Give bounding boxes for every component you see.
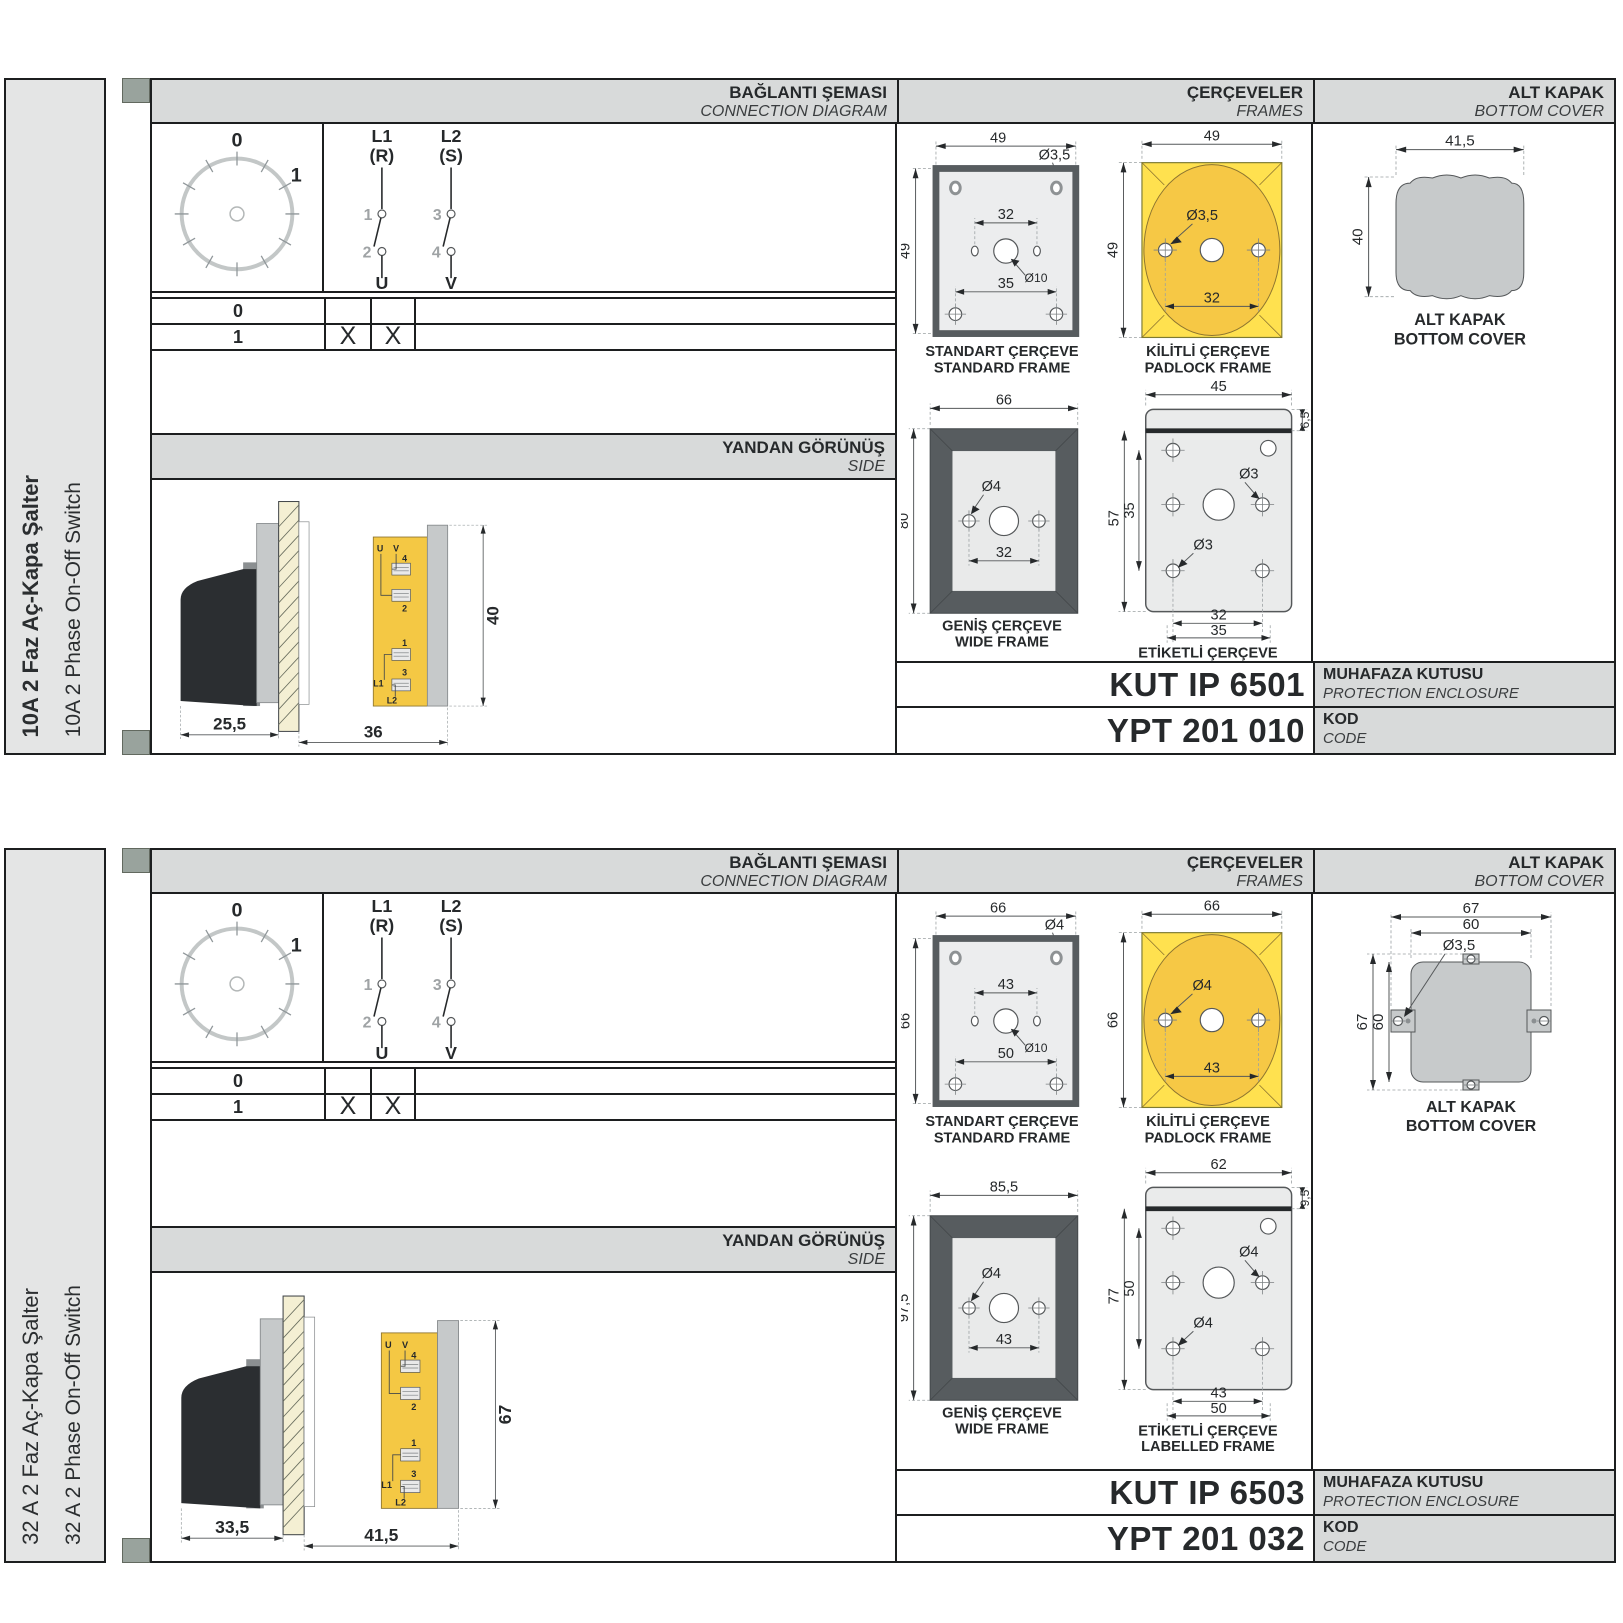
selector-dial-cell: 0 1 [152,894,324,1061]
enclosure-label-en: PROTECTION ENCLOSURE [1323,684,1614,703]
terminal-2: 2 [402,603,407,613]
lug-dot [1532,1019,1537,1024]
padlock-frame-figure: 49 49 Ø3,5 [1107,126,1309,378]
caption-tr: ALT KAPAK [1414,311,1506,329]
terminal-l1: L1 [381,1480,392,1490]
dim-inner-height: 50 [1122,1280,1138,1296]
contact-2: 2 [363,1014,372,1031]
enclosure-label: MUHAFAZA KUTUSU PROTECTION ENCLOSURE [1313,1471,1614,1514]
dim-depth-rear: 36 [364,722,383,741]
switch-diagram-cell: L1 (R) 1 2 U L2 (S) [326,124,588,291]
product-sidebar: 32 A 2 Faz Aç-Kapa Şalter 32 A 2 Phase O… [4,848,106,1563]
switch-diagram-cell: L1 (R) 1 2 U L2 (S) [326,894,588,1061]
mark-cell-u [324,299,370,323]
side-header-en: SIDE [152,1250,885,1269]
product-title-tr: 32 A 2 Faz Aç-Kapa Şalter [18,1288,44,1545]
selector-dial-cell: 0 1 [152,124,324,291]
dim-height: 57 [1107,510,1123,526]
dim-corner-hole: Ø3,5 [1039,148,1071,164]
terminal-3: 3 [411,1469,416,1479]
dim-height: 49 [1107,242,1122,258]
header-tr: ÇERÇEVELER [899,83,1303,102]
dim-height: 80 [901,513,912,529]
enclosure-code: KUT IP 6503 [897,1471,1313,1514]
table-row: 1 X X [152,325,895,351]
header-connection-diagram: BAĞLANTI ŞEMASI CONNECTION DIAGRAM [152,850,897,892]
mark-cell-v [370,299,416,323]
dim-spacing-2: 35 [1211,623,1227,639]
spacer [304,1317,315,1507]
terminal-label-u: U [385,1340,392,1350]
mark-cell-u: X [324,1095,370,1119]
caption-en: STANDARD FRAME [934,360,1071,376]
switch-handle [181,569,257,706]
terminal-4: 4 [411,1350,417,1360]
header-en: BOTTOM COVER [1315,102,1604,121]
gutter-square-top [122,78,150,103]
dial-position-0: 0 [232,130,243,152]
table-row: 1 X X [152,1095,895,1121]
caption-en: BOTTOM COVER [1394,330,1526,348]
rear-plate [438,1321,459,1509]
terminal-l2: L2 [387,696,397,706]
dim-height: 66 [901,1013,914,1029]
dim-band: 6,5 [1298,411,1312,428]
dim-width: 49 [1204,128,1220,144]
dim-hole-spacing: 32 [996,545,1012,561]
selector-dial: 0 1 [152,894,322,1061]
bottom-cover-figure: 41,5 40 ALT KAPAK BOTTOM COVER [1325,130,1609,364]
panel-body: 0 1 L1 (R) 1 [152,124,1614,753]
dim-hole-spacing: 35 [998,276,1014,292]
caption-tr: KİLİTLİ ÇERÇEVE [1146,343,1270,360]
terminal-label-v: V [393,543,399,553]
terminal-label-v: V [402,1340,409,1350]
labelled-frame-figure: 62 9,5 [1101,1156,1313,1456]
dial-position-1: 1 [291,934,302,956]
dim-slot-spacing: 43 [998,977,1014,993]
dim-hole-left: Ø3 [1193,537,1212,553]
dim-hole: Ø4 [982,479,1001,495]
dim-height-outer: 67 [1354,1014,1371,1031]
center-hole [994,1009,1018,1033]
dim-height: 97,5 [901,1294,912,1322]
center-hole [1200,1008,1223,1031]
code-label-tr: KOD [1323,710,1614,729]
dial-center [230,977,244,991]
center-hole [1200,238,1223,261]
dim-depth-rear: 41,5 [364,1525,398,1545]
dim-height: 40 [1350,228,1367,245]
front-plate [257,523,279,702]
labelled-frame-figure: 45 6,5 [1101,378,1313,678]
center-hole [1203,489,1234,520]
enclosure-label-en: PROTECTION ENCLOSURE [1323,1492,1614,1511]
spacer [299,522,309,705]
terminal-l1: L1 [373,679,383,689]
terminal-1: 1 [411,1438,416,1448]
header-en: BOTTOM COVER [1315,872,1604,891]
position-0-label: 0 [152,1069,324,1093]
code-row: YPT 201 010 KOD CODE [897,708,1614,753]
line-label-l2: L2 [441,896,462,916]
frames-column: 66 Ø4 66 [897,894,1313,1561]
enclosure-row: KUT IP 6501 MUHAFAZA KUTUSU PROTECTION E… [897,663,1614,708]
phase-label-r: (R) [370,916,395,936]
standard-frame-figure: 66 Ø4 66 [901,896,1103,1148]
padlock-frame-figure: 66 66 Ø4 [1107,896,1309,1148]
side-header-en: SIDE [152,457,885,476]
dim-hole: Ø4 [1192,978,1211,994]
line-label-l1: L1 [372,126,393,146]
terminal-label-u: U [377,543,383,553]
code-label: KOD CODE [1313,708,1614,753]
connection-diagram: 0 1 L1 (R) 1 [152,124,895,293]
position-1-label: 1 [152,325,324,349]
mark-cell-v: X [370,325,416,349]
dim-width: 66 [1204,898,1220,914]
side-header-tr: YANDAN GÖRÜNÜŞ [152,438,885,457]
dim-width: 49 [990,130,1006,146]
header-bottom-cover: ALT KAPAK BOTTOM COVER [1313,850,1614,892]
side-header-tr: YANDAN GÖRÜNÜŞ [152,1231,885,1250]
dim-lug-hole: Ø3,5 [1443,937,1476,954]
mounting-panel [283,1296,304,1535]
caption-tr: ALT KAPAK [1426,1099,1517,1116]
dim-hole-spacing: 32 [1204,291,1220,307]
mark-cell-v [370,1069,416,1093]
dim-corner-hole: Ø4 [1045,918,1064,934]
caption-tr: GENİŞ ÇERÇEVE [942,1405,1062,1422]
caption-tr: STANDART ÇERÇEVE [925,344,1079,360]
dim-hole-right: Ø4 [1239,1244,1258,1260]
mark-cell-u [324,1069,370,1093]
contact-4: 4 [432,244,441,261]
center-hole [989,506,1018,535]
mark-cell-v: X [370,1095,416,1119]
dim-height: 40 [483,606,502,625]
header-tr: BAĞLANTI ŞEMASI [152,83,887,102]
dim-hole-right: Ø3 [1239,466,1258,482]
contact-4: 4 [432,1014,441,1031]
header-frames: ÇERÇEVELER FRAMES [897,850,1313,892]
bottom-cover-figure: 67 60 67 60 [1325,900,1609,1144]
position-table: 0 1 X X [152,1067,895,1121]
cover-column: 41,5 40 ALT KAPAK BOTTOM COVER [1313,124,1614,753]
dial-position-0: 0 [232,900,243,922]
plain-hole [1260,1218,1276,1234]
standard-frame-figure: 49 Ø3,5 49 [901,126,1103,378]
product-title-en: 10A 2 Phase On-Off Switch [62,482,86,737]
empty-cell [416,299,895,323]
dim-width: 66 [996,392,1012,408]
contact-1: 1 [364,977,373,994]
dim-hole-spacing: 43 [1204,1061,1220,1077]
dim-depth-front: 25,5 [213,715,246,734]
connection-diagram: 0 1 L1 (R) 1 [152,894,895,1063]
side-view-drawing: U V 4 2 1 3 L1 L2 40 [162,488,622,750]
dim-spacing-1: 32 [1211,607,1227,623]
phase-label-s: (S) [439,916,463,936]
panel-main: BAĞLANTI ŞEMASI CONNECTION DIAGRAM ÇERÇE… [150,848,1616,1563]
table-row: 0 [152,1067,895,1095]
product-panel-32a: 32 A 2 Faz Aç-Kapa Şalter 32 A 2 Phase O… [4,848,1616,1563]
dim-hole-left: Ø4 [1193,1315,1212,1331]
dim-depth-front: 33,5 [215,1517,249,1537]
header-connection-diagram: BAĞLANTI ŞEMASI CONNECTION DIAGRAM [152,80,897,122]
dim-band: 9,5 [1298,1189,1312,1206]
code-row: YPT 201 032 KOD CODE [897,1516,1614,1561]
caption-en: WIDE FRAME [955,1421,1049,1437]
switch-handle [181,1366,260,1508]
dim-center-hole: Ø10 [1025,1041,1048,1055]
line-label-l1: L1 [372,896,393,916]
empty-cell [416,325,895,349]
codes-block: KUT IP 6503 MUHAFAZA KUTUSU PROTECTION E… [897,1469,1614,1561]
header-tr: BAĞLANTI ŞEMASI [152,853,887,872]
terminal-3: 3 [402,668,407,678]
enclosure-label-tr: MUHAFAZA KUTUSU [1323,665,1614,684]
dial-center [230,207,244,221]
product-title-tr: 10A 2 Faz Aç-Kapa Şalter [18,475,44,737]
caption-en: LABELLED FRAME [1141,1439,1275,1455]
connection-column: 0 1 L1 (R) 1 [152,894,897,1561]
contact-2: 2 [363,244,372,261]
product-sidebar: 10A 2 Faz Aç-Kapa Şalter 10A 2 Phase On-… [4,78,106,755]
dim-width: 45 [1211,379,1227,395]
dim-width-inner: 60 [1463,916,1480,933]
dim-height: 66 [1107,1012,1122,1028]
phase-label-r: (R) [370,146,395,166]
code-label-tr: KOD [1323,1518,1614,1537]
dim-spacing-2: 50 [1211,1401,1227,1417]
mark-cell-u: X [324,325,370,349]
panel-body: 0 1 L1 (R) 1 [152,894,1614,1561]
center-hole [989,1293,1018,1322]
header-bottom-cover: ALT KAPAK BOTTOM COVER [1313,80,1614,122]
mounting-panel [279,502,299,732]
enclosure-code: KUT IP 6501 [897,663,1313,706]
gutter-square-bottom [122,730,150,755]
terminal-2: 2 [411,1402,416,1412]
terminal-l2: L2 [395,1498,406,1508]
empty-cell [416,1069,895,1093]
phase-label-s: (S) [439,146,463,166]
frames-column: 49 Ø3,5 49 [897,124,1313,753]
connection-column: 0 1 L1 (R) 1 [152,124,897,753]
header-en: FRAMES [899,872,1303,891]
rear-plate [427,525,447,706]
caption-tr: GENİŞ ÇERÇEVE [942,618,1062,635]
caption-en: STANDARD FRAME [934,1130,1071,1146]
header-frames: ÇERÇEVELER FRAMES [897,80,1313,122]
terminal-1: 1 [402,638,407,648]
enclosure-label: MUHAFAZA KUTUSU PROTECTION ENCLOSURE [1313,663,1614,706]
terminal-v: V [445,273,457,291]
header-tr: ALT KAPAK [1315,853,1604,872]
plain-hole [1260,440,1276,456]
dim-height: 67 [495,1405,515,1425]
position-table: 0 1 X X [152,297,895,351]
header-tr: ÇERÇEVELER [899,853,1303,872]
selector-dial: 0 1 [152,124,322,291]
caption-tr: STANDART ÇERÇEVE [925,1114,1079,1130]
dim-height: 77 [1107,1288,1123,1304]
wide-frame-figure: 66 80 Ø4 [901,390,1103,652]
caption-tr: KİLİTLİ ÇERÇEVE [1146,1113,1270,1130]
contact-3: 3 [433,977,442,994]
dim-spacing-1: 43 [1211,1385,1227,1401]
contact-1: 1 [364,207,373,224]
caption-tr: ETİKETLİ ÇERÇEVE [1138,1422,1278,1439]
dim-width: 66 [990,900,1006,916]
gutter-square-bottom [122,1538,150,1563]
switch-diagram: L1 (R) 1 2 U L2 (S) [326,124,588,291]
center-hole [994,239,1018,263]
header-tr: ALT KAPAK [1315,83,1604,102]
product-code: YPT 201 032 [897,1516,1313,1561]
enclosure-label-tr: MUHAFAZA KUTUSU [1323,1473,1614,1492]
terminal-u: U [375,273,388,291]
terminal-u: U [375,1043,388,1061]
dim-width-outer: 67 [1463,900,1480,917]
dim-width: 62 [1211,1157,1227,1173]
codes-block: KUT IP 6501 MUHAFAZA KUTUSU PROTECTION E… [897,661,1614,753]
side-view-header: YANDAN GÖRÜNÜŞ SIDE [152,433,895,480]
caption-tr: ETİKETLİ ÇERÇEVE [1138,644,1278,661]
terminal-v: V [445,1043,457,1061]
caption-en: BOTTOM COVER [1406,1118,1537,1135]
section-header-row: BAĞLANTI ŞEMASI CONNECTION DIAGRAM ÇERÇE… [152,850,1614,894]
dim-height-inner: 60 [1370,1014,1387,1031]
product-code: YPT 201 010 [897,708,1313,753]
dim-hole-spacing: 43 [996,1332,1012,1348]
header-en: FRAMES [899,102,1303,121]
dial-position-1: 1 [291,164,302,186]
cover-body [1396,175,1524,299]
dim-center-hole: Ø10 [1025,271,1048,285]
cover-body [1411,962,1531,1082]
side-view-figure: U V 4 2 1 3 L1 L2 40 [162,488,622,750]
dim-inner-height: 35 [1122,502,1138,518]
product-title-en: 32 A 2 Phase On-Off Switch [62,1285,86,1545]
position-0-label: 0 [152,299,324,323]
terminal-4: 4 [402,554,407,564]
dim-hole: Ø3,5 [1186,208,1218,224]
section-header-row: BAĞLANTI ŞEMASI CONNECTION DIAGRAM ÇERÇE… [152,80,1614,124]
caption-en: WIDE FRAME [955,634,1049,650]
lug-dot [1406,1019,1411,1024]
dim-width: 41,5 [1445,133,1475,150]
header-en: CONNECTION DIAGRAM [152,102,887,121]
cover-column: 67 60 67 60 [1313,894,1614,1561]
empty-cell [416,1095,895,1119]
enclosure-row: KUT IP 6503 MUHAFAZA KUTUSU PROTECTION E… [897,1471,1614,1516]
panel-main: BAĞLANTI ŞEMASI CONNECTION DIAGRAM ÇERÇE… [150,78,1616,755]
caption-en: PADLOCK FRAME [1145,360,1272,376]
switch-diagram: L1 (R) 1 2 U L2 (S) [326,894,588,1061]
code-label: KOD CODE [1313,1516,1614,1561]
dim-width: 85,5 [990,1179,1018,1195]
front-plate [260,1319,283,1505]
table-row: 0 [152,297,895,325]
gutter-square-top [122,848,150,873]
caption-en: PADLOCK FRAME [1145,1130,1272,1146]
header-en: CONNECTION DIAGRAM [152,872,887,891]
dim-hole: Ø4 [982,1266,1001,1282]
code-label-en: CODE [1323,1537,1614,1556]
code-label-en: CODE [1323,729,1614,748]
contact-3: 3 [433,207,442,224]
line-label-l2: L2 [441,126,462,146]
side-view-figure: U V 4 2 1 3 L1 L2 67 [162,1282,622,1554]
side-view-header: YANDAN GÖRÜNÜŞ SIDE [152,1226,895,1273]
dim-height: 49 [901,243,914,259]
product-panel-10a: 10A 2 Faz Aç-Kapa Şalter 10A 2 Phase On-… [4,78,1616,755]
dim-slot-spacing: 32 [998,207,1014,223]
dim-hole-spacing: 50 [998,1046,1014,1062]
position-1-label: 1 [152,1095,324,1119]
center-hole [1203,1267,1234,1298]
wide-frame-figure: 85,5 97,5 Ø4 [901,1177,1103,1439]
side-view-drawing: U V 4 2 1 3 L1 L2 67 [162,1282,622,1554]
